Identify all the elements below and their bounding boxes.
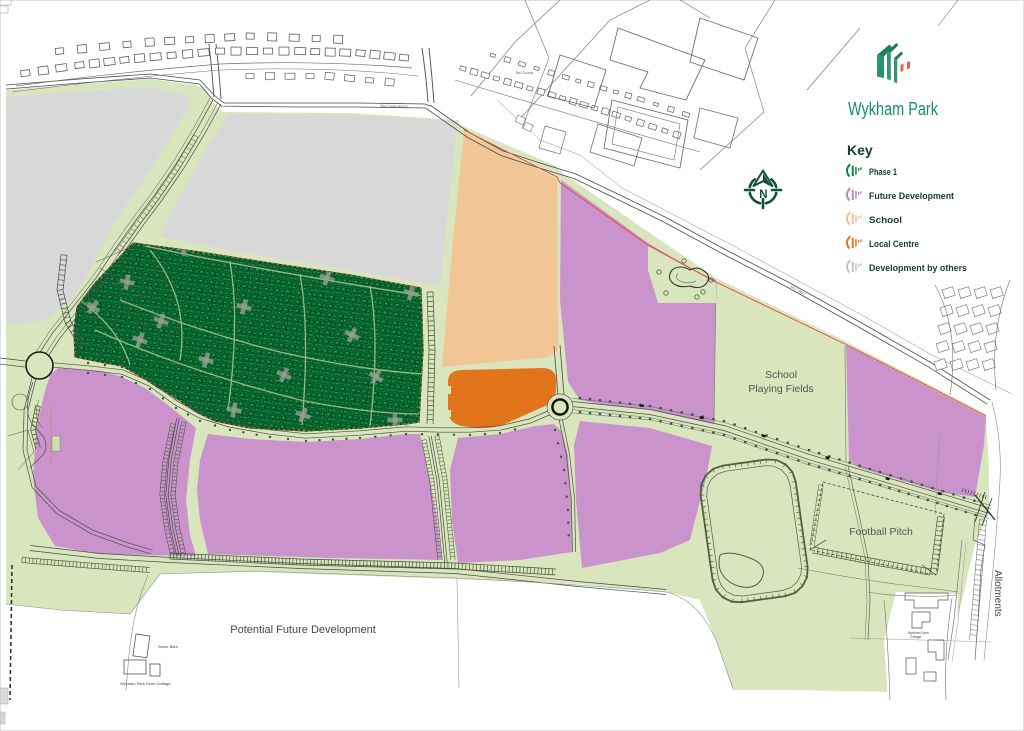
svg-text:Wykham Park: Wykham Park (848, 99, 939, 119)
svg-text:N: N (759, 189, 767, 201)
svg-text:Future Development: Future Development (869, 191, 955, 202)
svg-text:Allotments: Allotments (992, 570, 1003, 617)
svg-text:Playing Fields: Playing Fields (748, 383, 813, 395)
svg-text:Potential Future Development: Potential Future Development (230, 624, 376, 636)
svg-text:Bel Course: Bel Course (516, 71, 533, 75)
svg-text:Development by others: Development by others (869, 263, 967, 274)
svg-text:Key: Key (847, 142, 873, 158)
svg-text:Cottage: Cottage (910, 635, 921, 639)
svg-text:School: School (765, 369, 797, 381)
svg-text:Phase 1: Phase 1 (869, 167, 898, 178)
svg-text:Wykham Park Farm Cottage: Wykham Park Farm Cottage (120, 681, 171, 686)
svg-text:Football Pitch: Football Pitch (849, 526, 913, 538)
svg-text:Local Centre: Local Centre (869, 239, 919, 250)
svg-text:School: School (869, 215, 902, 226)
svg-text:Stone Barn: Stone Barn (158, 644, 178, 649)
